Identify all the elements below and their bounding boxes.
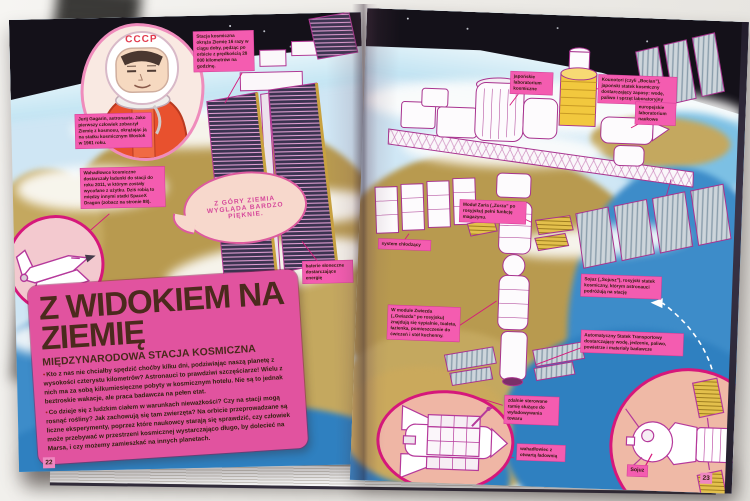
page-number-23: 23 — [700, 473, 712, 484]
label-sojuz-capsule: Sojuz — [627, 465, 647, 477]
label-cooling-system: system chłodzący — [378, 239, 430, 251]
label-sojuz-ship: Sojuz („Sojusz”), rosyjski statek kosmic… — [581, 274, 662, 299]
label-kounotori: Kounotori (czyli „Bocian”), japoński sta… — [598, 75, 677, 106]
right-page: japońskie laboratorium kosmiczne Kounoto… — [350, 8, 749, 494]
label-shuttles-history: Wahadłowce kosmiczne dostarczały ładunki… — [80, 167, 165, 209]
label-zwiezda-module: W module Zwiezda („Gwiazda” po rosyjsku)… — [387, 305, 460, 342]
label-atv-transporter: Automatyczny Statek Transportowy dostarc… — [581, 330, 684, 356]
shuttle-open-bay-drawing — [378, 391, 513, 492]
label-zaria-module: Moduł Zaria („Zorza” po rosyjsku) pełni … — [459, 200, 526, 225]
label-gagarin: Jurij Gagarin, astronauta. Jako pierwszy… — [75, 113, 152, 149]
helmet-cccp-text: CCCP — [125, 34, 158, 46]
photo-of-open-book: CCCP Stacja kosmiczna okrąża Ziemię 16 r… — [0, 0, 750, 501]
label-robot-arm: zdalnie sterowane ramię służące do wyład… — [504, 395, 559, 425]
label-station-orbit: Stacja kosmiczna okrąża Ziemię 16 razy w… — [193, 31, 254, 73]
left-page: CCCP Stacja kosmiczna okrąża Ziemię 16 r… — [9, 12, 371, 472]
title-block: Z WIDOKIEM NA ZIEMIĘ MIĘDZYNARODOWA STAC… — [27, 269, 308, 465]
page-number-22: 22 — [43, 457, 55, 468]
intro-text: •Kto z nas nie chciałby spędzić choćby k… — [43, 355, 298, 454]
label-japanese-lab: japońskie laboratorium kosmiczne — [510, 71, 553, 95]
label-european-lab: europejskie laboratorium naukowe — [635, 102, 676, 126]
label-shuttle-open-bay: wahadłowiec z otwartą ładownią — [517, 444, 566, 462]
label-solar-batteries: baterie słoneczne dostarczające energię — [302, 260, 352, 283]
